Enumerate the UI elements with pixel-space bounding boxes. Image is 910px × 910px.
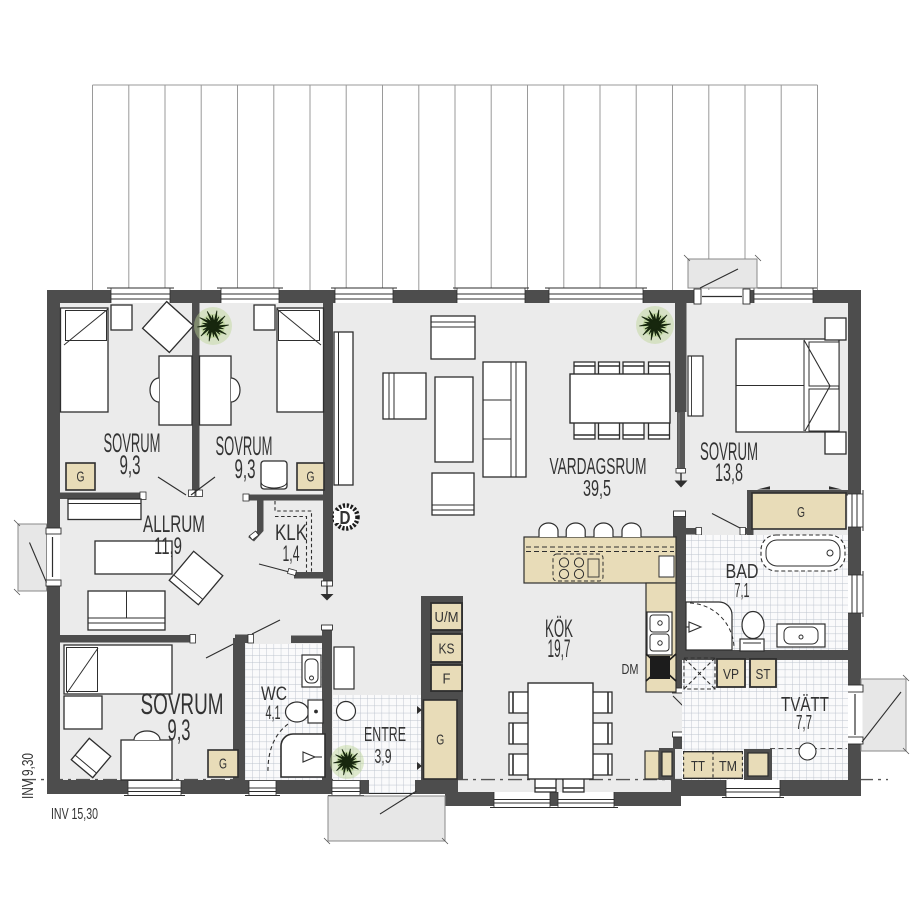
- svg-text:7,1: 7,1: [735, 580, 750, 602]
- svg-text:13,8: 13,8: [715, 459, 743, 487]
- svg-text:TT: TT: [691, 758, 705, 775]
- svg-text:TM: TM: [719, 758, 737, 775]
- svg-text:VP: VP: [723, 666, 739, 683]
- svg-text:9,3: 9,3: [235, 454, 256, 484]
- svg-text:11,9: 11,9: [154, 533, 182, 560]
- svg-text:INV 9,30: INV 9,30: [20, 753, 37, 799]
- svg-text:ST: ST: [756, 666, 771, 683]
- svg-text:19,7: 19,7: [548, 635, 571, 663]
- svg-text:G: G: [436, 732, 444, 749]
- svg-text:F: F: [443, 671, 451, 688]
- svg-text:1,4: 1,4: [283, 541, 300, 566]
- svg-text:D: D: [340, 508, 351, 528]
- svg-text:ENTRE: ENTRE: [364, 724, 406, 746]
- svg-text:G: G: [307, 469, 315, 486]
- svg-text:7,7: 7,7: [796, 712, 812, 734]
- svg-text:G: G: [77, 469, 85, 486]
- svg-text:DM: DM: [622, 661, 639, 678]
- svg-text:INV 15,30: INV 15,30: [51, 806, 98, 823]
- svg-text:3,9: 3,9: [375, 746, 392, 768]
- svg-text:4,1: 4,1: [266, 703, 281, 724]
- svg-text:U/M: U/M: [435, 609, 459, 626]
- svg-text:KS: KS: [439, 641, 455, 658]
- svg-text:WC: WC: [261, 684, 287, 705]
- svg-text:9,3: 9,3: [120, 450, 141, 480]
- svg-text:39,5: 39,5: [583, 475, 611, 501]
- svg-text:G: G: [797, 504, 805, 521]
- svg-text:G: G: [219, 756, 227, 773]
- svg-text:9,3: 9,3: [168, 714, 191, 747]
